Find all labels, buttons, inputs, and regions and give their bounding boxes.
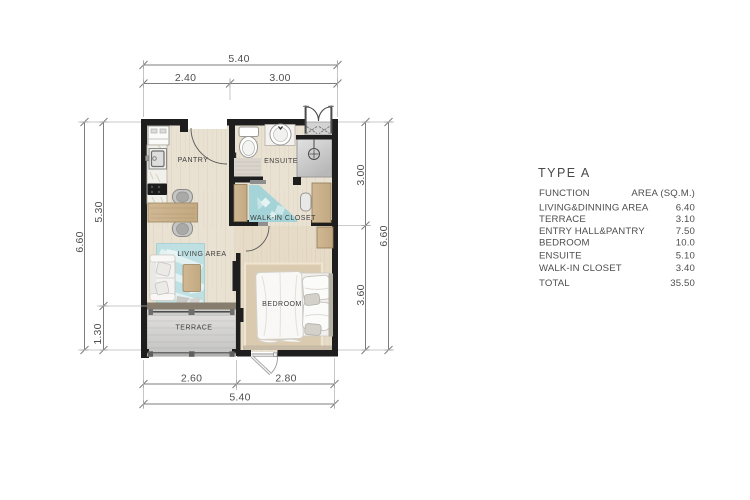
svg-text:WALK-IN CLOSET: WALK-IN CLOSET bbox=[250, 215, 316, 222]
svg-text:LIVING AREA: LIVING AREA bbox=[177, 251, 226, 258]
svg-text:ENSUITE: ENSUITE bbox=[539, 251, 582, 262]
svg-text:5.40: 5.40 bbox=[228, 53, 249, 65]
svg-text:BEDROOM: BEDROOM bbox=[262, 301, 302, 308]
svg-text:2.80: 2.80 bbox=[275, 373, 296, 385]
svg-text:ENTRY HALL&PANTRY: ENTRY HALL&PANTRY bbox=[539, 226, 645, 237]
svg-text:AREA (SQ.M.): AREA (SQ.M.) bbox=[631, 188, 695, 199]
svg-text:ENSUITE: ENSUITE bbox=[264, 158, 298, 165]
svg-text:6.40: 6.40 bbox=[676, 203, 695, 214]
svg-text:2.40: 2.40 bbox=[175, 72, 196, 84]
svg-text:3.40: 3.40 bbox=[676, 263, 695, 274]
svg-text:35.50: 35.50 bbox=[670, 278, 695, 289]
svg-text:7.50: 7.50 bbox=[676, 226, 695, 237]
svg-text:10.0: 10.0 bbox=[676, 238, 695, 249]
svg-text:TERRACE: TERRACE bbox=[539, 214, 586, 225]
svg-text:TYPE A: TYPE A bbox=[538, 166, 591, 180]
svg-text:3.10: 3.10 bbox=[676, 214, 695, 225]
svg-text:5.30: 5.30 bbox=[93, 201, 105, 222]
svg-text:WALK-IN CLOSET: WALK-IN CLOSET bbox=[539, 263, 622, 274]
svg-text:TERRACE: TERRACE bbox=[176, 325, 213, 332]
svg-text:TOTAL: TOTAL bbox=[539, 278, 570, 289]
svg-text:LIVING&DINNING AREA: LIVING&DINNING AREA bbox=[539, 203, 649, 214]
svg-text:BEDROOM: BEDROOM bbox=[539, 238, 590, 249]
svg-text:3.00: 3.00 bbox=[355, 164, 367, 185]
svg-text:3.00: 3.00 bbox=[269, 72, 290, 84]
svg-text:5.10: 5.10 bbox=[676, 251, 695, 262]
svg-text:FUNCTION: FUNCTION bbox=[539, 188, 590, 199]
svg-text:5.40: 5.40 bbox=[229, 392, 250, 404]
svg-text:1.30: 1.30 bbox=[92, 323, 104, 344]
svg-text:6.60: 6.60 bbox=[74, 231, 86, 252]
svg-text:6.60: 6.60 bbox=[378, 225, 390, 246]
svg-text:2.60: 2.60 bbox=[181, 373, 202, 385]
svg-text:3.60: 3.60 bbox=[355, 284, 367, 305]
svg-text:PANTRY: PANTRY bbox=[178, 157, 209, 164]
